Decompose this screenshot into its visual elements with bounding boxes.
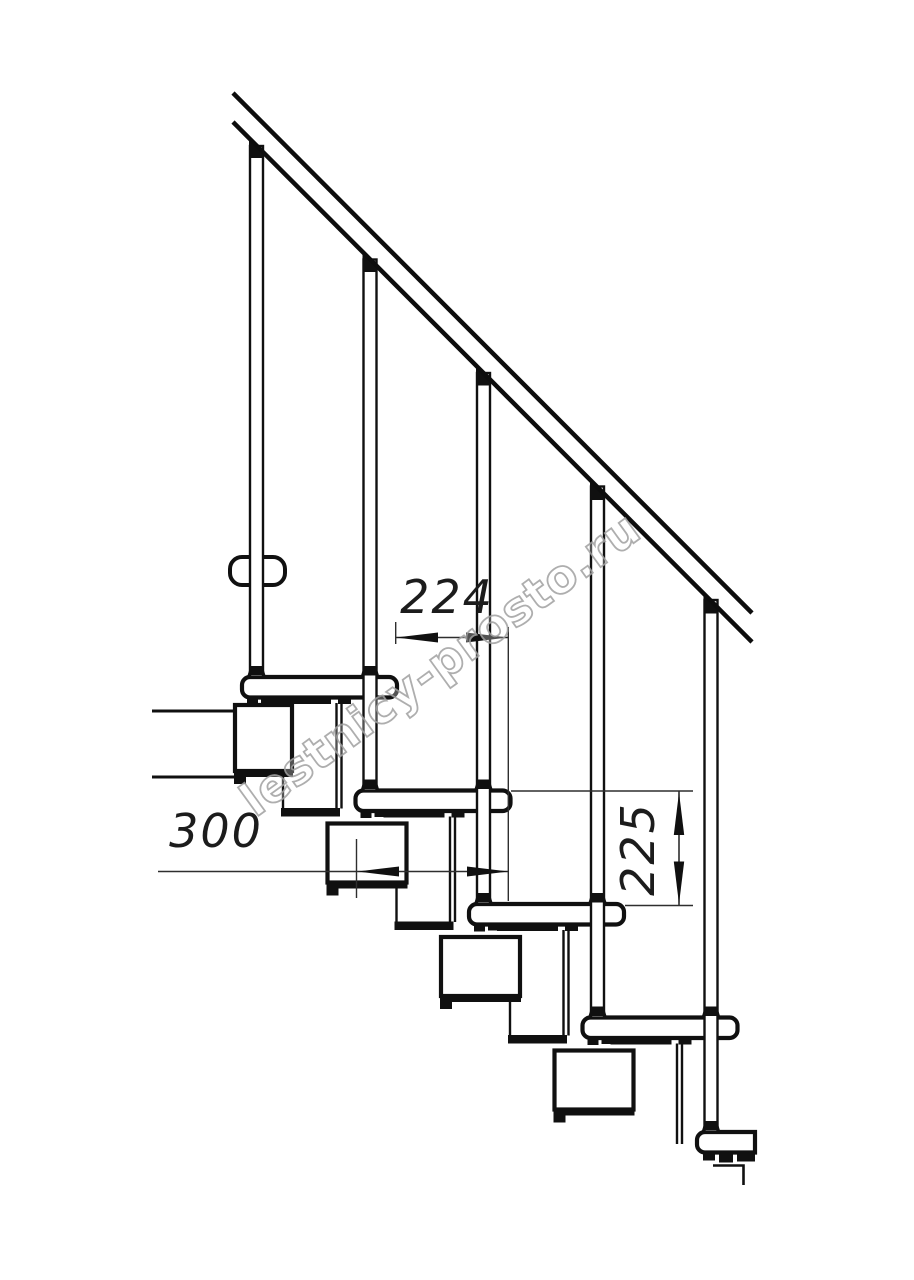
- tread-5: [697, 1132, 755, 1153]
- baluster-1: [250, 146, 263, 677]
- arrow-down-icon: [674, 862, 684, 905]
- landing-platform-edge: [152, 711, 237, 777]
- handrail: [233, 93, 752, 642]
- support-module-3: [440, 930, 569, 1044]
- baluster-5: [705, 600, 718, 1132]
- dimension-label-step-rise: 225: [613, 797, 667, 901]
- arrow-up-icon: [674, 793, 684, 836]
- floor-step-line: [713, 1166, 744, 1186]
- dimension-label-tread-depth: 300: [168, 806, 264, 857]
- support-module-4: [554, 1044, 683, 1145]
- staircase-technical-drawing: 224 300 225 lestnicy-prosto.ru: [0, 0, 914, 1280]
